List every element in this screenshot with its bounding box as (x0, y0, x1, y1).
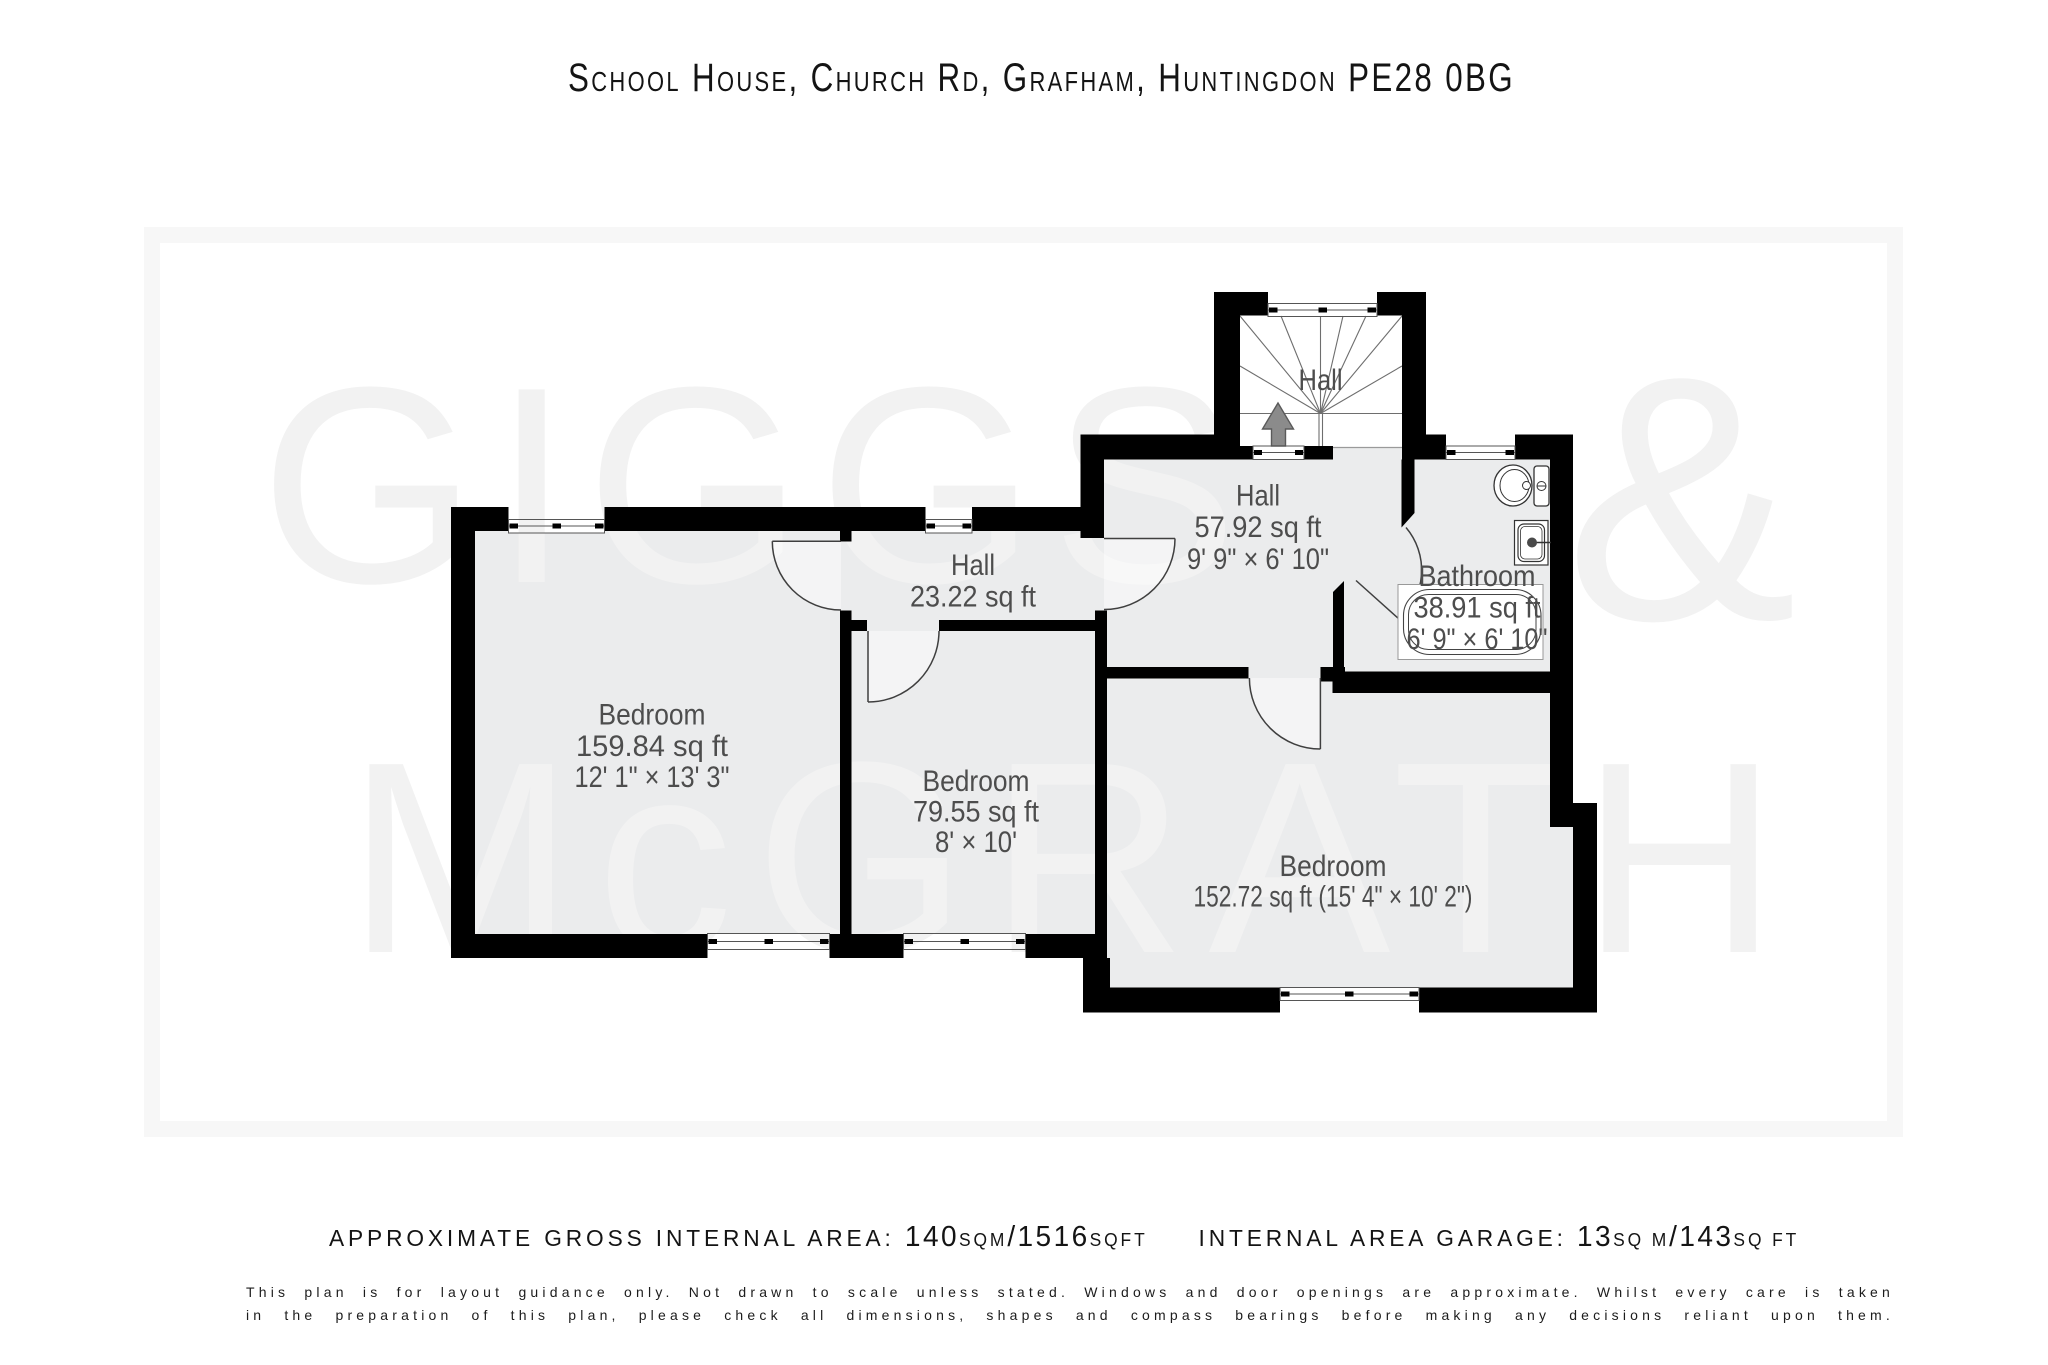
svg-text:12' 1" × 13' 3": 12' 1" × 13' 3" (575, 761, 730, 794)
svg-text:&: & (1565, 304, 1797, 693)
svg-text:159.84 sq ft: 159.84 sq ft (576, 730, 729, 763)
svg-text:Hall: Hall (951, 549, 995, 582)
svg-text:Bedroom: Bedroom (923, 765, 1030, 798)
svg-text:8' × 10': 8' × 10' (935, 826, 1017, 859)
svg-text:Bathroom: Bathroom (1419, 560, 1536, 593)
svg-text:Hall: Hall (1299, 364, 1343, 397)
svg-text:6' 9" × 6' 10": 6' 9" × 6' 10" (1407, 623, 1548, 656)
svg-text:Bedroom: Bedroom (1280, 850, 1387, 883)
svg-text:23.22 sq ft: 23.22 sq ft (910, 581, 1037, 614)
svg-text:Hall: Hall (1236, 480, 1280, 513)
svg-text:57.92 sq ft: 57.92 sq ft (1195, 511, 1323, 544)
svg-text:Bedroom: Bedroom (599, 698, 706, 731)
svg-text:152.72 sq ft (15' 4" × 10' 2"): 152.72 sq ft (15' 4" × 10' 2") (1194, 881, 1473, 914)
svg-text:79.55 sq ft: 79.55 sq ft (913, 796, 1040, 829)
svg-text:38.91 sq ft: 38.91 sq ft (1414, 592, 1542, 625)
svg-text:9' 9" × 6' 10": 9' 9" × 6' 10" (1187, 543, 1329, 576)
